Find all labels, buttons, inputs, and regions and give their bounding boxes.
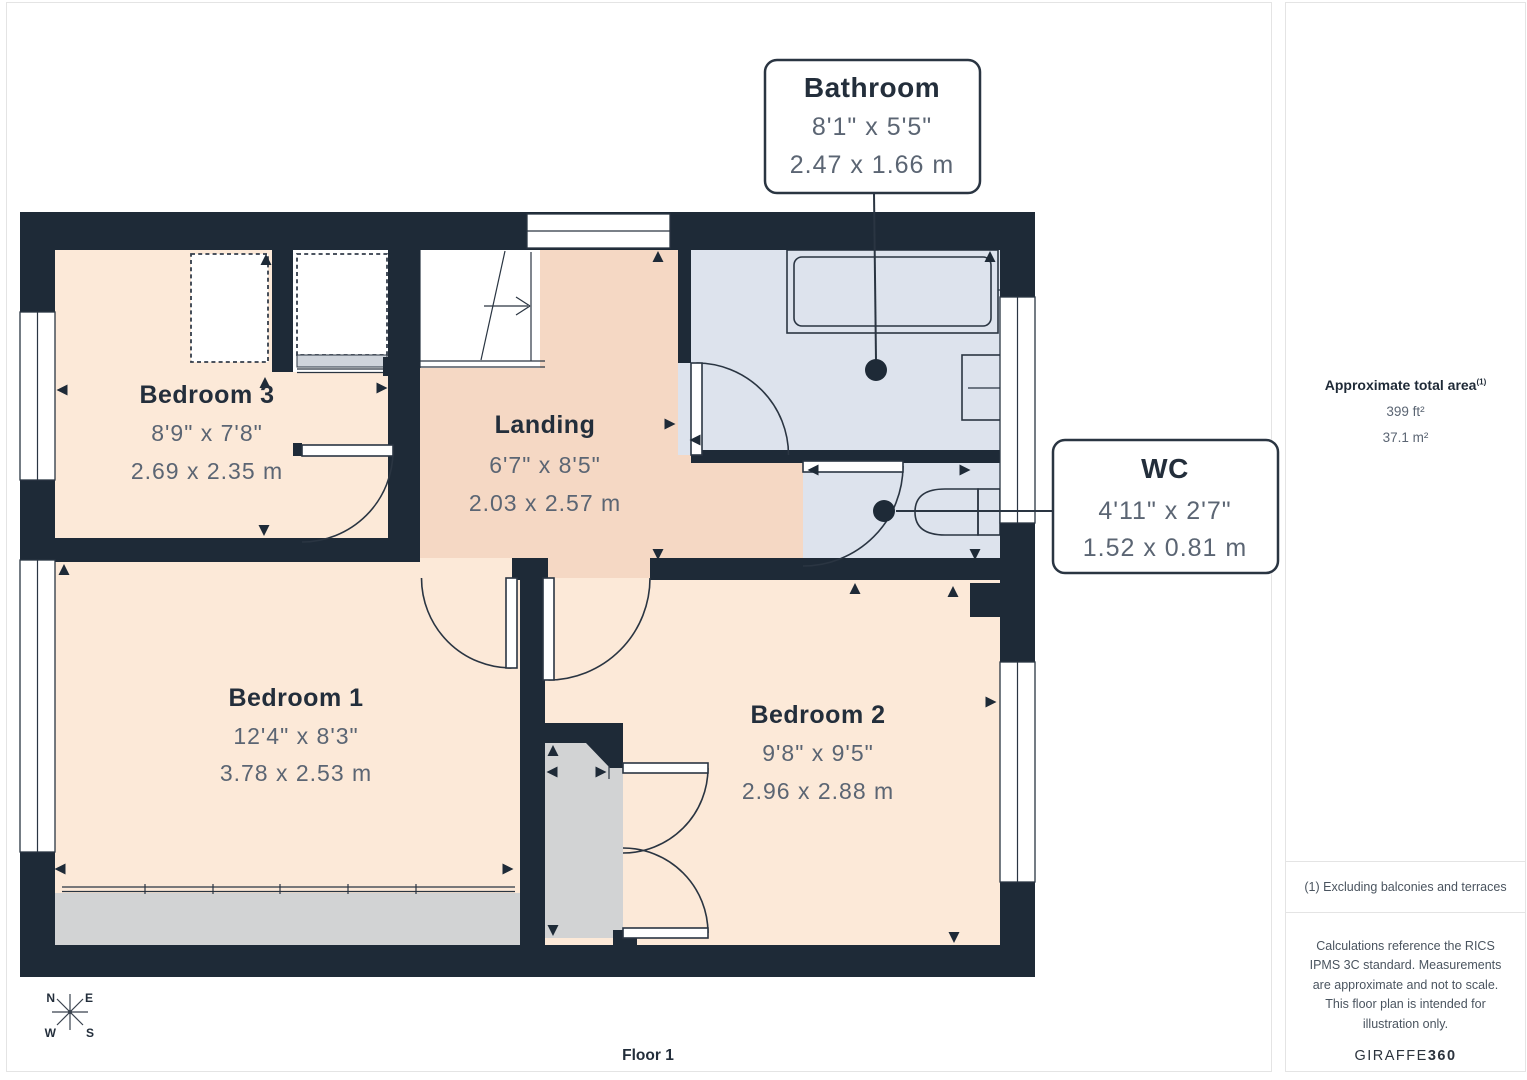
wc-leader-dot (873, 500, 895, 522)
area-footnote-marker: (1) (1476, 377, 1486, 386)
compass-s: S (86, 1026, 94, 1040)
floorplan-page: Bathroom 8'1" x 5'5" 2.47 x 1.66 m WC 4'… (0, 0, 1527, 1080)
cupboard-icon (297, 254, 387, 355)
bathroom-callout-imperial: 8'1" x 5'5" (812, 113, 932, 141)
compass-rose-icon: N E W S (45, 991, 94, 1040)
staircase-area (420, 250, 540, 368)
total-area-title: Approximate total area(1) (1286, 377, 1525, 393)
bedroom2-imperial: 9'8" x 9'5" (762, 740, 874, 766)
wc-callout-metric: 1.52 x 0.81 m (1083, 534, 1247, 562)
info-sidebar: Approximate total area(1) 399 ft² 37.1 m… (1285, 2, 1526, 1072)
disclaimer-text: Calculations reference the RICS IPMS 3C … (1307, 937, 1505, 1034)
wc-callout-title: WC (1141, 453, 1189, 484)
bedroom2-threshold (548, 558, 650, 578)
compass-w: W (45, 1026, 57, 1040)
total-area-metric: 37.1 m² (1286, 430, 1525, 445)
compass-e: E (85, 991, 93, 1005)
bedroom1-name: Bedroom 1 (228, 684, 363, 712)
window-top (527, 214, 670, 248)
wc-callout-imperial: 4'11" x 2'7" (1098, 497, 1231, 525)
bathroom-floor (691, 250, 1000, 450)
bedroom1-imperial: 12'4" x 8'3" (233, 723, 358, 749)
compass-n: N (46, 991, 55, 1005)
total-area-imperial: 399 ft² (1286, 404, 1525, 419)
window-left-lower (20, 560, 55, 852)
bathroom-leader-dot (865, 359, 887, 381)
giraffe360-logo: GIRAFFE360 (1286, 1048, 1525, 1064)
bathroom-callout-metric: 2.47 x 1.66 m (790, 151, 954, 179)
brand-suffix: 360 (1428, 1048, 1457, 1064)
landing-imperial: 6'7" x 8'5" (489, 452, 601, 478)
window-left-upper (20, 312, 55, 480)
footnote-section: (1) Excluding balconies and terraces (1286, 861, 1525, 912)
bathroom-door-gap (678, 363, 691, 455)
total-area-block: Approximate total area(1) 399 ft² 37.1 m… (1286, 377, 1525, 445)
bedroom1-wardrobe-floor (55, 893, 520, 945)
footnote-text: (1) Excluding balconies and terraces (1304, 880, 1506, 894)
window-right-lower (1000, 662, 1035, 882)
brand-name: GIRAFFE (1354, 1048, 1427, 1064)
floor-label: Floor 1 (622, 1047, 674, 1064)
bedroom3-metric: 2.69 x 2.35 m (131, 458, 283, 484)
bedroom1-metric: 3.78 x 2.53 m (220, 760, 372, 786)
wardrobe-icon (191, 254, 268, 362)
window-right-upper (1000, 297, 1035, 523)
bathroom-callout-title: Bathroom (804, 72, 940, 103)
landing-metric: 2.03 x 2.57 m (469, 490, 621, 516)
bedroom3-imperial: 8'9" x 7'8" (151, 420, 263, 446)
bedroom3-name: Bedroom 3 (139, 381, 274, 409)
disclaimer-section: Calculations reference the RICS IPMS 3C … (1286, 912, 1525, 1073)
landing-name: Landing (495, 411, 596, 439)
bedroom2-name: Bedroom 2 (750, 701, 885, 729)
total-area-title-text: Approximate total area (1325, 377, 1477, 393)
cupboard-door-bar (297, 355, 387, 367)
bedroom2-metric: 2.96 x 2.88 m (742, 778, 894, 804)
